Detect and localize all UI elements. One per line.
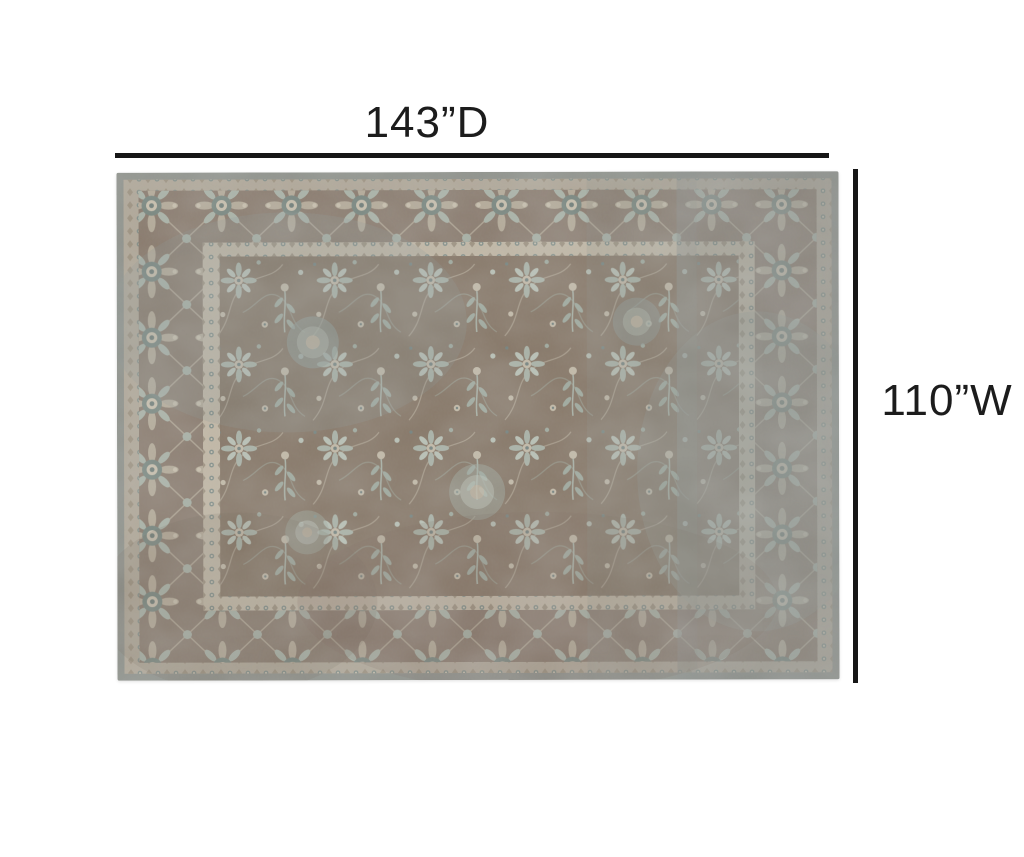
depth-dimension-label: 143”D	[327, 101, 527, 145]
rug-photo	[116, 171, 839, 681]
rug-product-image	[116, 171, 839, 681]
rug-dimension-diagram: 143”D 110”W	[0, 0, 1024, 857]
width-dimension-label: 110”W	[867, 379, 1024, 423]
depth-dimension-line	[115, 153, 829, 158]
width-dimension-line	[853, 169, 858, 683]
